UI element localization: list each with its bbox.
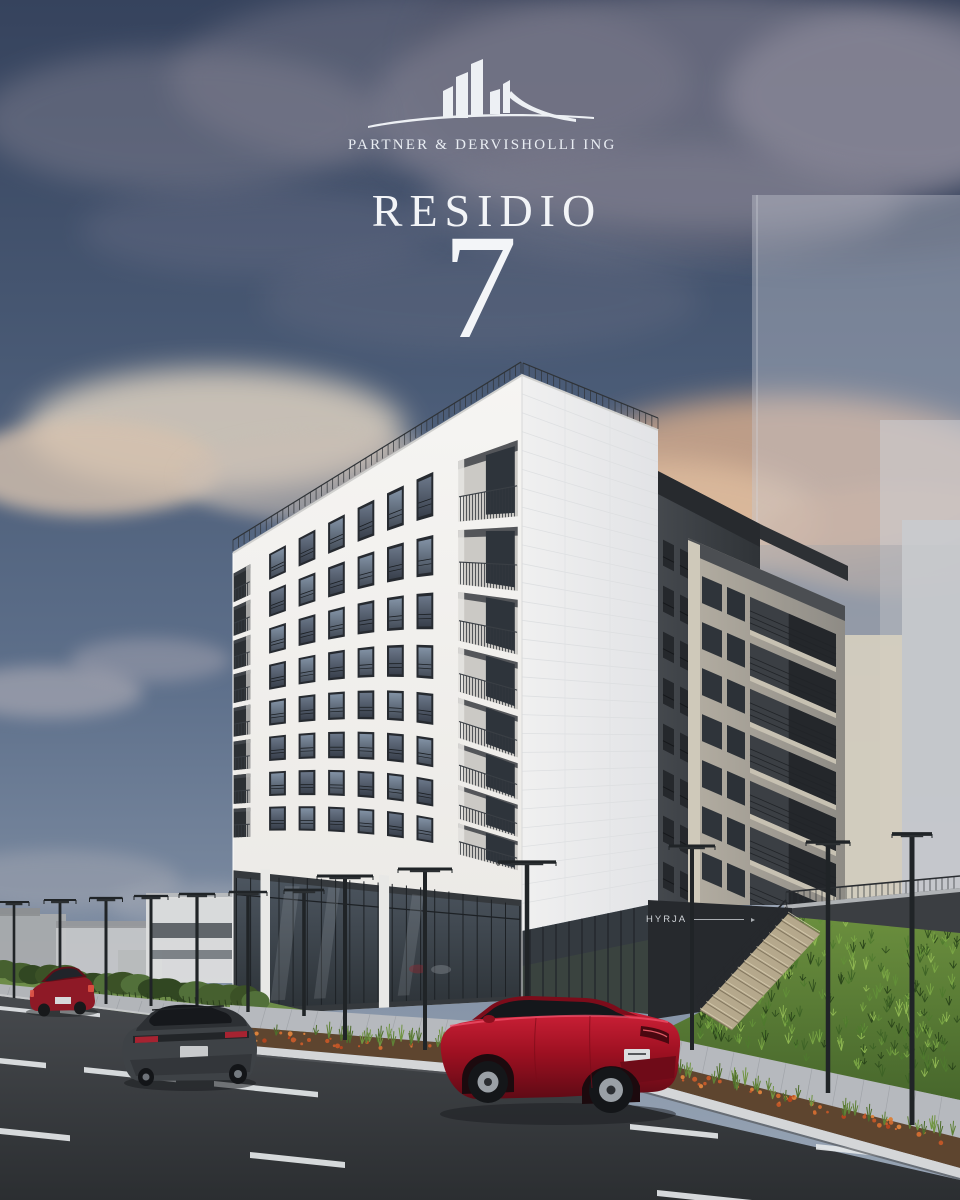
entrance-sign-label: HYRJA (646, 914, 687, 925)
entrance-sign-arrow-icon (751, 918, 755, 922)
company-name: PARTNER & DERVISHOLLI ING (0, 137, 960, 154)
entrance-sign: HYRJA (646, 914, 755, 925)
skyline-buildings-swoosh-icon (364, 50, 596, 136)
gray-midrise (688, 538, 845, 948)
project-number: 7 (0, 212, 960, 362)
brand-logo (364, 50, 596, 136)
architectural-render (0, 0, 960, 1200)
render-canvas: PARTNER & DERVISHOLLI ING RESIDIO 7 HYRJ… (0, 0, 960, 1200)
entrance-sign-line (694, 919, 744, 920)
